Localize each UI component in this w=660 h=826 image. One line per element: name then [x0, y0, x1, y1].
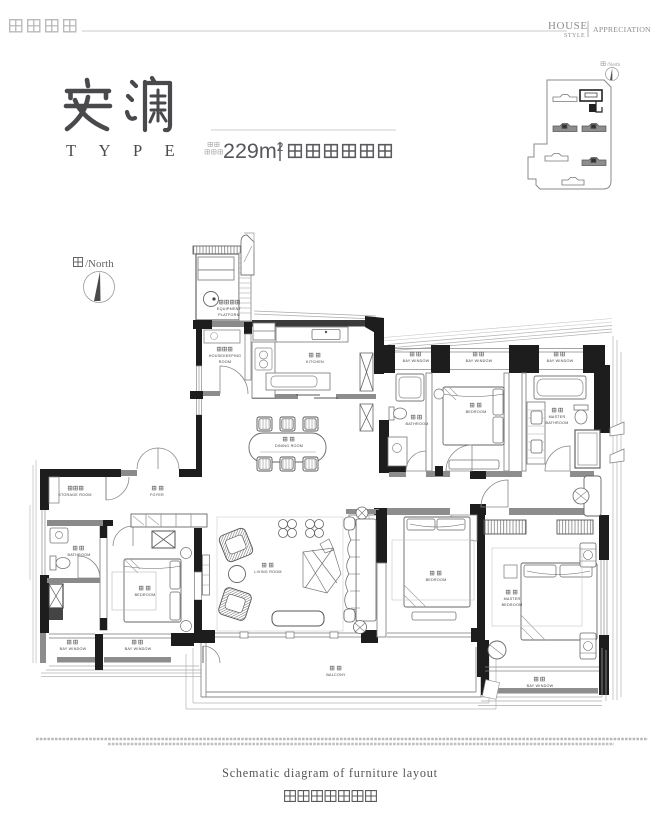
svg-text:BAY WINDOW: BAY WINDOW	[466, 359, 493, 363]
svg-text:/North: /North	[607, 63, 621, 68]
svg-text:BALCONY: BALCONY	[326, 673, 346, 677]
svg-text:HOUSE: HOUSE	[548, 20, 588, 32]
svg-text:BAY WINDOW: BAY WINDOW	[60, 647, 87, 651]
svg-text:229m2: 229m2	[223, 139, 284, 163]
svg-text:/North: /North	[85, 258, 114, 270]
svg-text:TYPE: TYPE	[66, 141, 197, 160]
svg-text:HOUSEKEEPING: HOUSEKEEPING	[209, 354, 242, 358]
svg-text:LIVING ROOM: LIVING ROOM	[254, 570, 281, 574]
svg-text:BAY WINDOW: BAY WINDOW	[527, 684, 554, 688]
svg-text:FOYER: FOYER	[150, 493, 164, 497]
svg-text:MASTER: MASTER	[549, 415, 566, 419]
svg-text:STORAGE ROOM: STORAGE ROOM	[58, 493, 91, 497]
svg-text:BATHROOM: BATHROOM	[405, 422, 428, 426]
svg-text:STYLE: STYLE	[564, 33, 585, 39]
svg-text:BATHROOM: BATHROOM	[67, 553, 90, 557]
svg-text:BAY WINDOW: BAY WINDOW	[547, 359, 574, 363]
svg-text:MASTER: MASTER	[504, 597, 521, 601]
svg-text:BEDROOM: BEDROOM	[466, 410, 487, 414]
svg-text:EQUIPMENT: EQUIPMENT	[217, 307, 242, 311]
svg-text:Schematic diagram of furniture: Schematic diagram of furniture layout	[222, 766, 438, 780]
svg-text:PLATFORM: PLATFORM	[218, 313, 240, 317]
svg-text:BEDROOM: BEDROOM	[135, 593, 156, 597]
svg-text:BAY WINDOW: BAY WINDOW	[125, 647, 152, 651]
svg-text:BEDROOM: BEDROOM	[502, 603, 523, 607]
svg-text:BEDROOM: BEDROOM	[426, 578, 447, 582]
svg-text:BATHROOM: BATHROOM	[545, 421, 568, 425]
svg-text:KITCHEN: KITCHEN	[306, 360, 324, 364]
svg-text:APPRECIATION: APPRECIATION	[593, 25, 651, 34]
svg-text:DINING ROOM: DINING ROOM	[275, 444, 303, 448]
svg-text:BAY WINDOW: BAY WINDOW	[403, 359, 430, 363]
svg-text:ROOM: ROOM	[219, 360, 231, 364]
